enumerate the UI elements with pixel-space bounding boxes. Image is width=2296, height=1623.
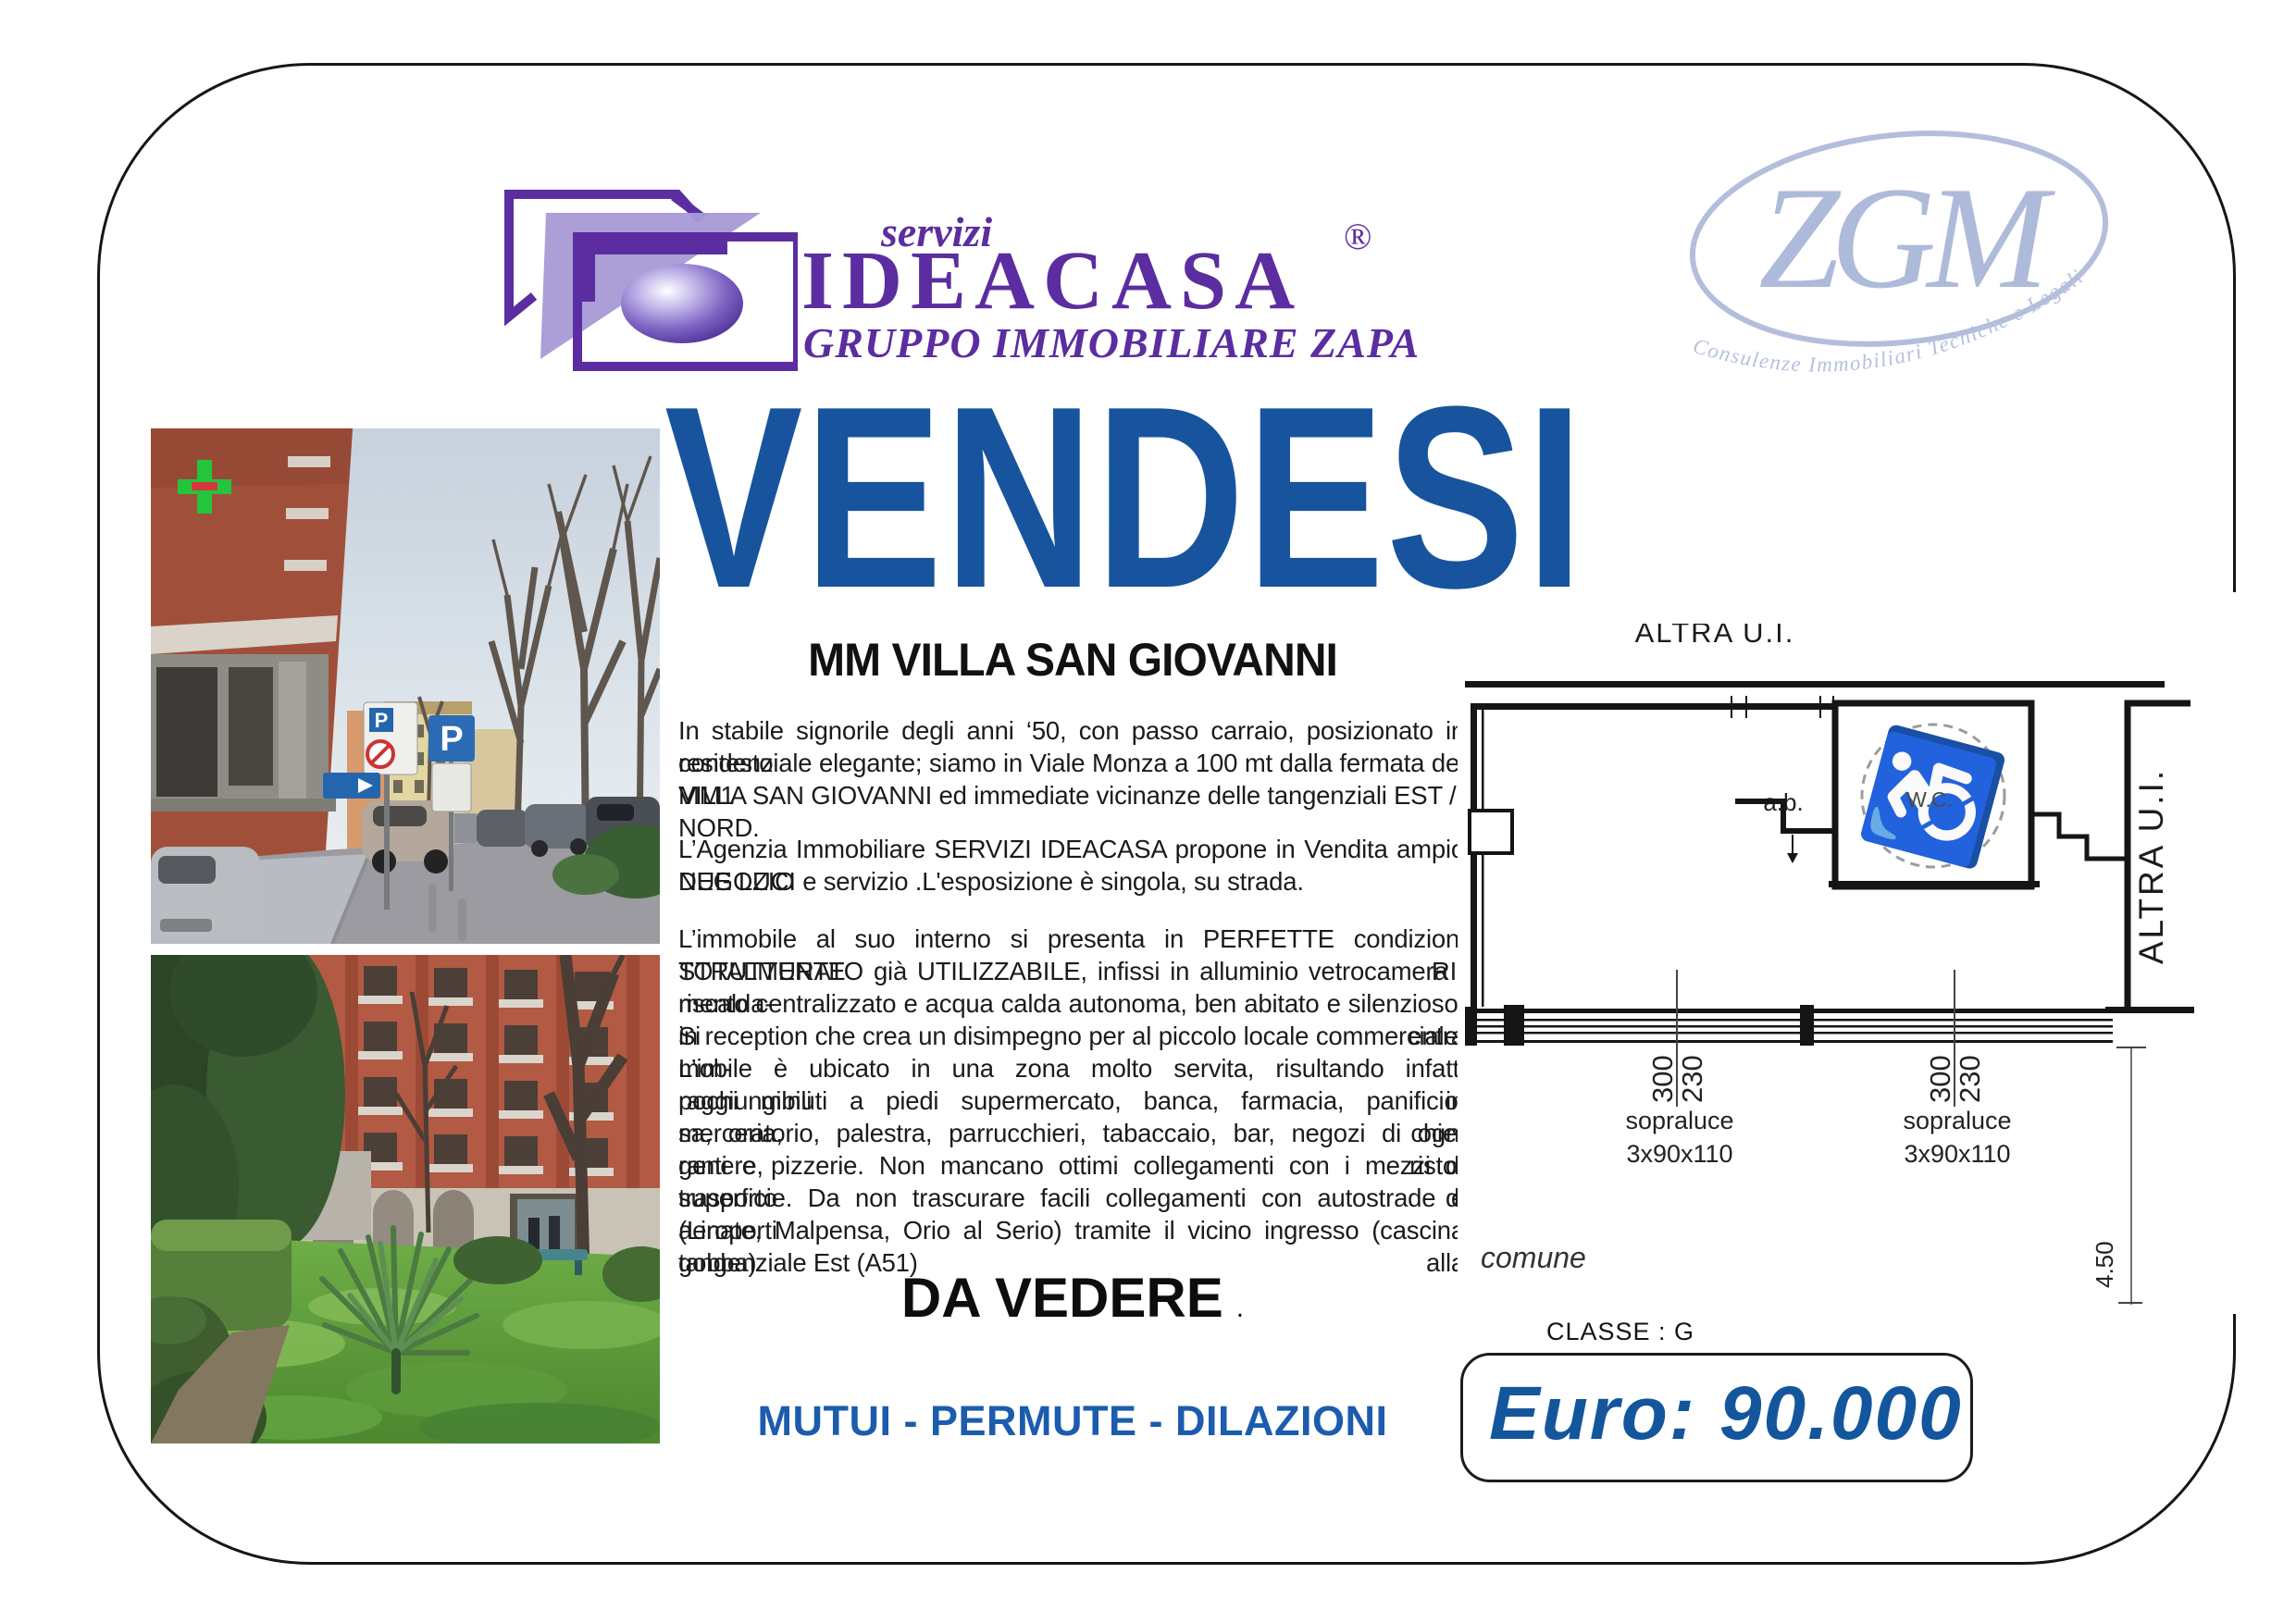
cta-period: . — [1236, 1293, 1244, 1323]
shrub — [453, 1236, 542, 1284]
body-line: ranti e pizzerie. Non mancano ottimi col… — [678, 1149, 1465, 1182]
body-line: STRUTTURATO già UTILIZZABILE, infissi in… — [678, 955, 1465, 987]
body-line: pochi minuti a piedi supermercato, banca… — [678, 1084, 1465, 1117]
cta-text: DA VEDERE — [901, 1267, 1223, 1329]
registered-mark: ® — [1344, 215, 1371, 258]
headline-vendesi: VENDESI — [664, 368, 1585, 627]
label-clip — [1607, 611, 1824, 624]
bush2 — [552, 854, 619, 895]
upper-wall — [1465, 681, 2165, 688]
body-line: DUE LUCI e servizio .L'esposizione è sin… — [678, 865, 1465, 898]
room-wc-label: W.C. — [1906, 787, 1953, 811]
dim-left-caption1: sopraluce — [1625, 1107, 1733, 1134]
zgm-logo: ZGM Consulenze Immobiliari Tecniche e Le… — [1666, 109, 2138, 396]
dim-right-outer: 300 — [1924, 1055, 1956, 1103]
body-line: L’Agenzia Immobiliare SERVIZI IDEACASA p… — [678, 833, 1465, 865]
energy-class-label: CLASSE : G — [1546, 1318, 1694, 1346]
logo-sphere — [621, 264, 743, 343]
cta-da-vedere: DA VEDERE. — [678, 1266, 1467, 1330]
price-box: Euro: 90.000 — [1460, 1353, 1973, 1482]
body-line: VILLA SAN GIOVANNI ed immediate vicinanz… — [678, 779, 1465, 811]
body-line: sa, oratorio, palestra, parrucchieri, ta… — [678, 1117, 1465, 1149]
body-line: In stabile signorile degli anni ‘50, con… — [678, 714, 1465, 747]
body-line: residenziale elegante; siamo in Viale Mo… — [678, 747, 1465, 779]
body-line: superficie. Da non trascurare facili col… — [678, 1182, 1465, 1214]
comune-label: comune — [1481, 1241, 1586, 1274]
body-line: mobile è ubicato in una zona molto servi… — [678, 1052, 1465, 1084]
garden-photo — [151, 955, 660, 1443]
dim-left-caption2: 3x90x110 — [1626, 1140, 1732, 1168]
floor-plan: ALTRA U.I. a.b. ♿ W.C. ALTRA U.I. — [1458, 592, 2253, 1314]
ideacasa-logo-icon — [492, 176, 798, 372]
dim-right-caption1: sopraluce — [1903, 1107, 2011, 1134]
dim-right-caption2: 3x90x110 — [1904, 1140, 2010, 1168]
wc-bottom-wall — [1829, 881, 2040, 887]
dim-left-outer: 300 — [1646, 1055, 1679, 1103]
flyer-page: servizi IDEACASA ® GRUPPO IMMOBILIARE ZA… — [0, 0, 2296, 1623]
pillar-box — [1470, 811, 1512, 853]
plan-label-right: ALTRA U.I. — [2132, 768, 2170, 964]
body-line: mento centralizzato e acqua calda autono… — [678, 987, 1465, 1020]
height-dim-label: 4.50 — [2091, 1241, 2118, 1288]
body-line: in reception che crea un disimpegno per … — [678, 1020, 1465, 1052]
street-photo: P P — [151, 428, 660, 944]
dim-right-inner: 230 — [1954, 1055, 1986, 1103]
right-unit-bottom — [2105, 1007, 2194, 1013]
price-label: Euro: 90.000 — [1489, 1370, 1970, 1457]
zgm-letters: ZGM — [1758, 157, 2055, 319]
svg-text:P: P — [440, 720, 463, 759]
body-line: (Linate, Malpensa, Orio al Serio) tramit… — [678, 1214, 1465, 1246]
listing-location-title: MM VILLA SAN GIOVANNI — [694, 633, 1451, 687]
financing-label: MUTUI - PERMUTE - DILAZIONI — [678, 1397, 1467, 1445]
svg-text:P: P — [375, 709, 389, 732]
brand-name: IDEACASA — [801, 233, 1303, 328]
dim-left-inner: 230 — [1676, 1055, 1708, 1103]
body-line: L’immobile al suo interno si presenta in… — [678, 923, 1465, 955]
